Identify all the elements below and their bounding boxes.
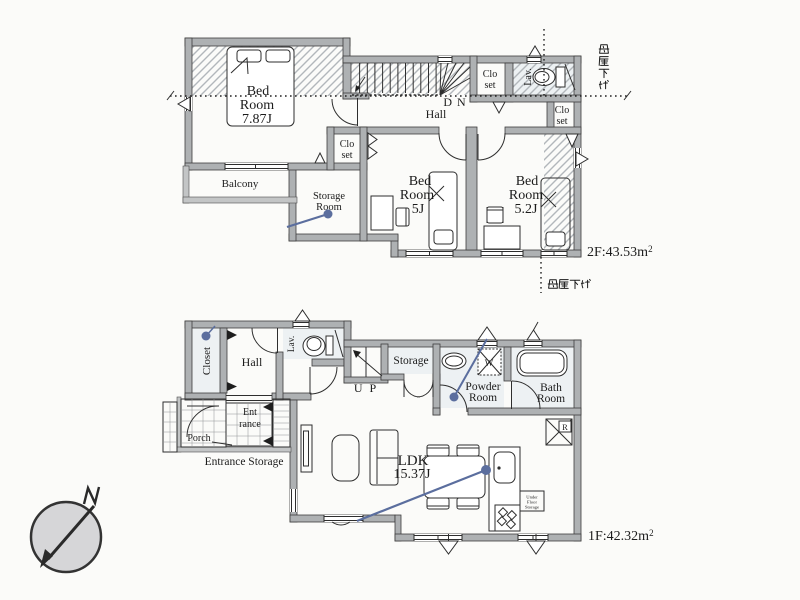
svg-text:set: set [484, 80, 495, 91]
svg-text:15.37J: 15.37J [394, 467, 432, 482]
svg-text:5J: 5J [412, 202, 425, 217]
svg-text:Storage: Storage [525, 505, 539, 510]
svg-text:W: W [485, 358, 494, 368]
svg-text:Lav.: Lav. [523, 68, 534, 85]
svg-text:7.87J: 7.87J [242, 112, 273, 127]
svg-text:Room: Room [240, 98, 274, 113]
svg-text:Room: Room [509, 188, 543, 203]
svg-text:Clo: Clo [555, 105, 569, 116]
svg-text:5.2J: 5.2J [515, 202, 539, 217]
svg-text:set: set [556, 116, 567, 127]
svg-text:Bed: Bed [516, 174, 539, 189]
svg-text:Hall: Hall [426, 107, 447, 121]
svg-text:Room: Room [469, 392, 497, 404]
svg-text:Bed: Bed [409, 174, 432, 189]
svg-text:Clo: Clo [483, 69, 497, 80]
svg-text:rance: rance [239, 419, 261, 430]
svg-text:Porch: Porch [187, 433, 210, 444]
svg-text:Room: Room [400, 188, 434, 203]
svg-text:R: R [562, 422, 568, 432]
svg-text:2F:43.53m2: 2F:43.53m2 [587, 244, 653, 260]
svg-text:Room: Room [537, 393, 565, 405]
svg-text:D N: D N [443, 95, 466, 109]
svg-text:Clo: Clo [340, 139, 354, 150]
svg-text:Storage: Storage [313, 191, 345, 202]
svg-text:Storage: Storage [393, 355, 428, 367]
svg-text:Balcony: Balcony [222, 178, 259, 190]
svg-text:1F:42.32m2: 1F:42.32m2 [588, 528, 654, 544]
svg-text:Entrance Storage: Entrance Storage [205, 456, 284, 468]
svg-text:Ent: Ent [243, 407, 257, 418]
svg-text:set: set [341, 150, 352, 161]
svg-text:U P: U P [354, 381, 378, 395]
svg-text:Lav.: Lav. [287, 336, 297, 353]
svg-text:Closet: Closet [201, 347, 213, 375]
svg-text:Bed: Bed [247, 84, 270, 99]
svg-text:Hall: Hall [242, 355, 263, 369]
